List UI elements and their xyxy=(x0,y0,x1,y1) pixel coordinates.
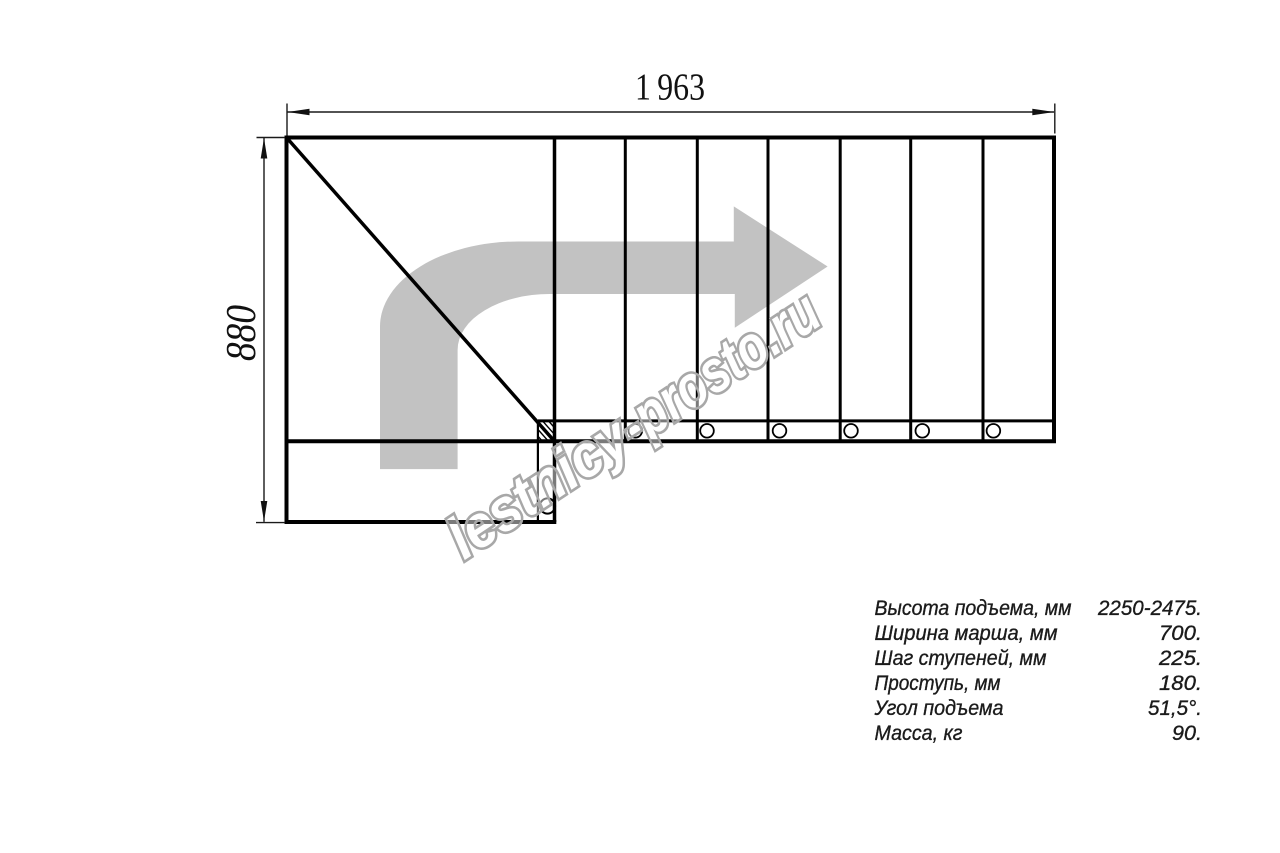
svg-text:Ширина марша, мм: Ширина марша, мм xyxy=(875,622,1058,645)
svg-text:Угол подъема: Угол подъема xyxy=(874,697,1004,720)
svg-text:Масса, кг: Масса, кг xyxy=(875,722,963,745)
svg-text:prosto.ru: prosto.ru xyxy=(618,278,832,450)
svg-text:2250-2475.: 2250-2475. xyxy=(1097,597,1202,620)
svg-text:225.: 225. xyxy=(1158,647,1202,670)
svg-text:Шаг ступеней, мм: Шаг ступеней, мм xyxy=(875,647,1047,670)
svg-text:Высота подъема, мм: Высота подъема, мм xyxy=(875,597,1072,620)
svg-text:180.: 180. xyxy=(1159,672,1202,695)
svg-text:880: 880 xyxy=(219,305,265,361)
svg-text:51,5°.: 51,5°. xyxy=(1148,697,1202,720)
svg-text:700.: 700. xyxy=(1159,622,1202,645)
svg-text:Проступь, мм: Проступь, мм xyxy=(875,672,1001,695)
svg-text:90.: 90. xyxy=(1172,722,1202,745)
svg-text:1 963: 1 963 xyxy=(635,67,705,109)
